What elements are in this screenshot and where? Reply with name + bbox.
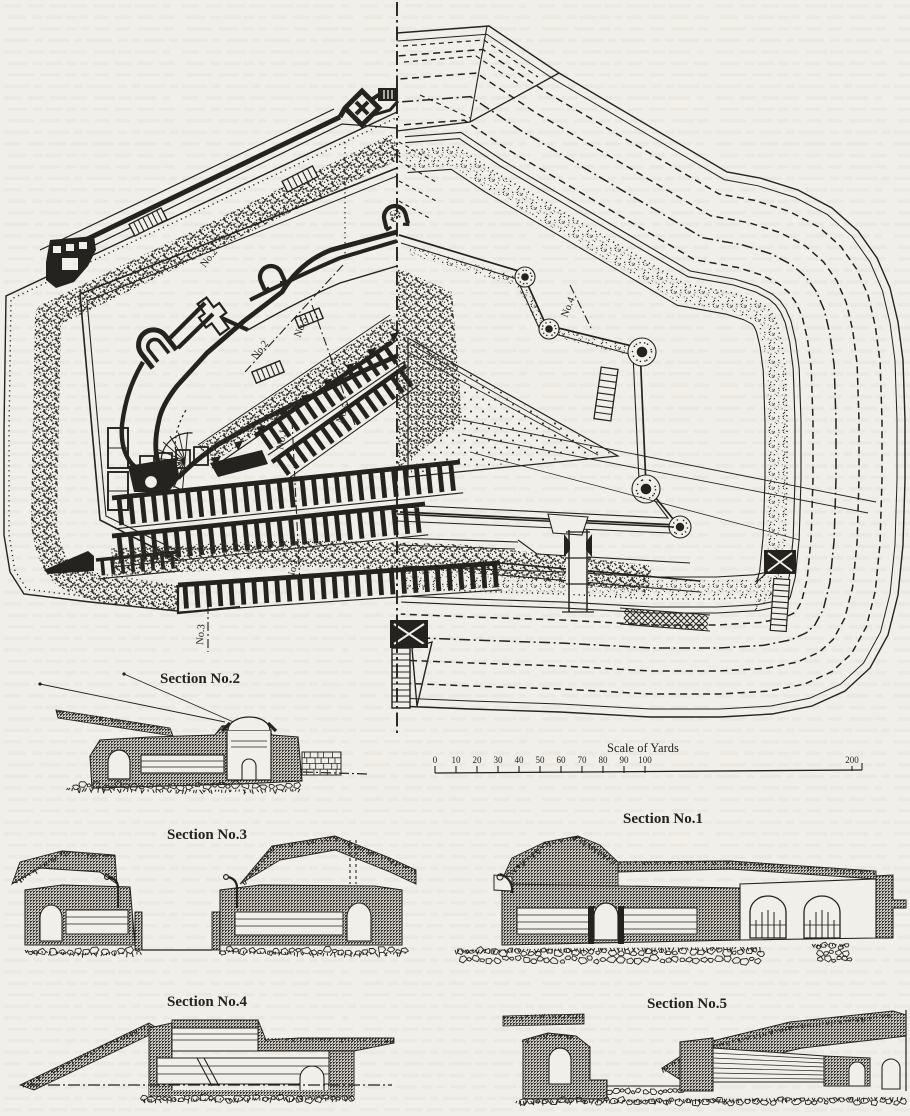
- svg-text:10: 10: [452, 755, 462, 765]
- svg-text:80: 80: [599, 755, 609, 765]
- svg-text:70: 70: [578, 755, 588, 765]
- svg-text:60: 60: [557, 755, 567, 765]
- svg-text:50: 50: [536, 755, 546, 765]
- svg-text:Section No.3: Section No.3: [167, 827, 247, 843]
- svg-text:Section No.1: Section No.1: [623, 811, 703, 827]
- svg-text:No.3: No.3: [195, 624, 207, 645]
- svg-text:Scale of Yards: Scale of Yards: [607, 741, 679, 755]
- svg-text:100: 100: [638, 755, 652, 765]
- svg-text:40: 40: [515, 755, 525, 765]
- svg-text:200: 200: [845, 755, 859, 765]
- svg-text:Section No.2: Section No.2: [160, 671, 240, 687]
- svg-text:Section No.5: Section No.5: [647, 996, 727, 1012]
- svg-text:Section No.4: Section No.4: [167, 994, 247, 1010]
- svg-text:90: 90: [620, 755, 630, 765]
- svg-text:0: 0: [433, 755, 438, 765]
- svg-text:30: 30: [494, 755, 504, 765]
- svg-text:20: 20: [473, 755, 483, 765]
